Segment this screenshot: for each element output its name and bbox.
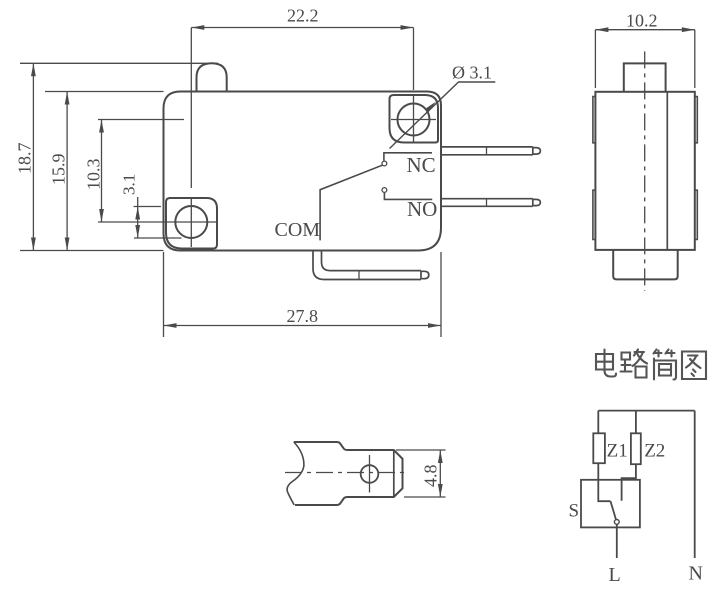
svg-text:22.2: 22.2 [287,6,319,26]
svg-text:COM: COM [275,219,321,241]
svg-text:N: N [689,563,703,585]
svg-text:Ø 3.1: Ø 3.1 [452,63,492,83]
svg-text:L: L [609,564,621,586]
svg-text:27.8: 27.8 [287,306,319,326]
svg-text:NO: NO [407,197,437,221]
svg-text:15.9: 15.9 [49,154,69,186]
svg-text:Z2: Z2 [644,441,665,462]
svg-text:4.8: 4.8 [421,465,441,488]
svg-text:Z1: Z1 [607,441,628,462]
svg-text:10.2: 10.2 [626,11,658,31]
svg-text:18.7: 18.7 [15,143,35,175]
svg-text:NC: NC [407,153,436,177]
svg-text:S: S [569,501,580,522]
svg-text:10.3: 10.3 [84,159,104,191]
svg-text:3.1: 3.1 [120,174,139,195]
